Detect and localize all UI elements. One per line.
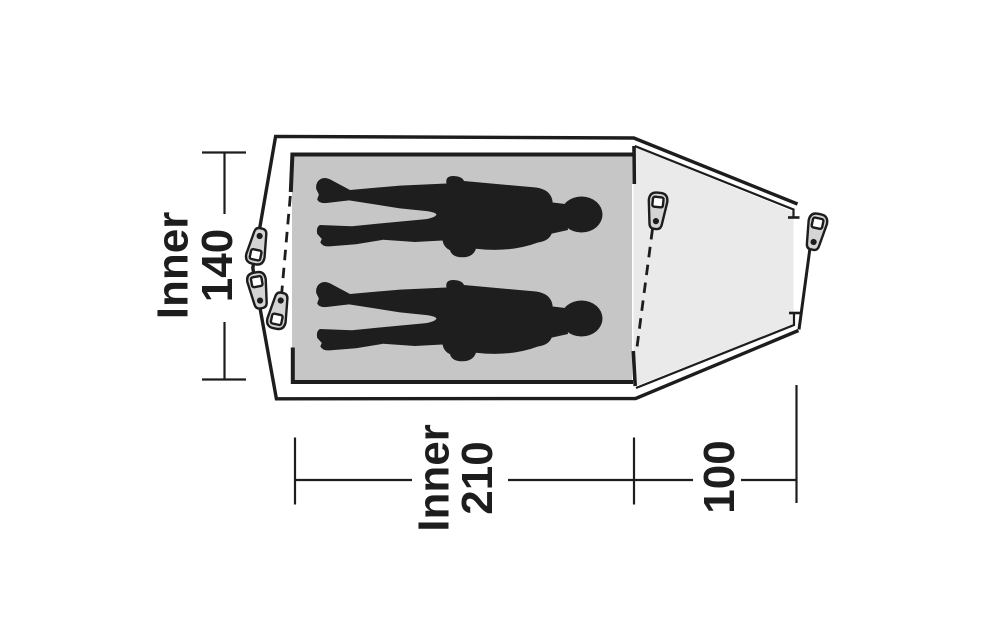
svg-text:100: 100	[695, 440, 744, 513]
svg-text:Inner: Inner	[149, 212, 198, 320]
svg-text:210: 210	[453, 441, 502, 514]
svg-text:140: 140	[193, 229, 242, 302]
svg-text:Inner: Inner	[410, 424, 459, 532]
